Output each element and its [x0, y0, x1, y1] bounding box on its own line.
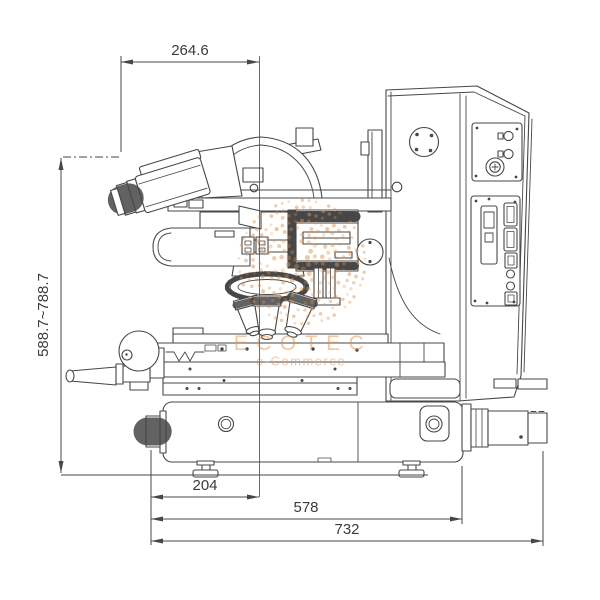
column-rear-tab	[494, 379, 516, 388]
watermark-title: ECOTEC	[234, 332, 373, 355]
watermark-subtitle: e-Commerce	[256, 354, 346, 369]
dimension-label-top-width: 264.6	[171, 42, 209, 59]
dimension-label-stage-offset: 204	[192, 477, 217, 494]
eyecup-knurl	[122, 197, 131, 200]
dimension-label-overall-depth: 732	[334, 521, 359, 538]
button-icon	[504, 149, 513, 158]
camera-port	[296, 128, 313, 146]
base	[146, 402, 463, 477]
button-icon	[504, 131, 513, 140]
column-foot	[390, 379, 460, 398]
dimension-label-base-depth: 578	[293, 499, 318, 516]
base-front-knob	[146, 411, 166, 453]
connector-panel-lower	[471, 196, 520, 306]
base-bracket	[420, 406, 449, 441]
connector-panel-upper	[472, 123, 522, 181]
microscope-technical-drawing: 264.6 588.7~788.7 204 578 732 ECOTEC e-C…	[0, 0, 600, 600]
drawing-canvas: 264.6 588.7~788.7 204 578 732 ECOTEC e-C…	[0, 0, 600, 600]
knob-connector-icon	[486, 158, 504, 176]
column-rear-tab	[518, 379, 547, 389]
dimension-label-height-range: 588.7~788.7	[35, 273, 52, 357]
column-flange	[410, 128, 439, 157]
lamp-housing	[462, 404, 547, 451]
focus-knob	[119, 331, 159, 371]
